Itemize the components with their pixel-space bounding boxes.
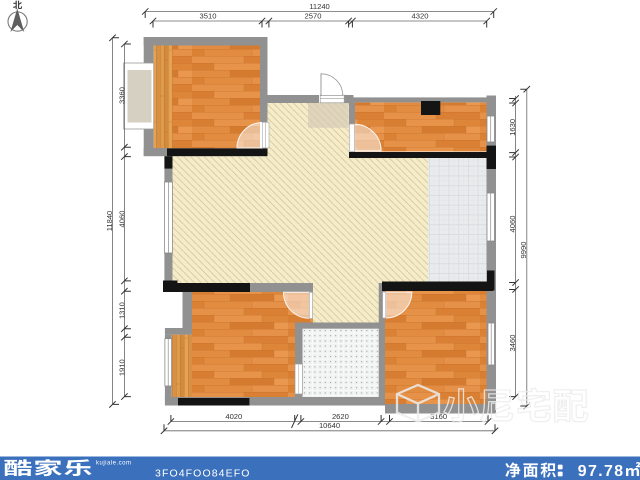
svg-text:4020: 4020 xyxy=(225,412,242,421)
svg-text:3460: 3460 xyxy=(508,335,517,352)
svg-text:11840: 11840 xyxy=(105,211,114,232)
svg-text:3FO4FOO84EFO: 3FO4FOO84EFO xyxy=(155,468,250,480)
svg-text:2620: 2620 xyxy=(332,412,349,421)
svg-text:2570: 2570 xyxy=(305,12,322,21)
svg-text:9990: 9990 xyxy=(519,242,528,259)
svg-text:10640: 10640 xyxy=(319,421,340,430)
svg-text:1910: 1910 xyxy=(118,359,127,376)
svg-text:1630: 1630 xyxy=(508,119,517,136)
svg-text:3510: 3510 xyxy=(200,12,217,21)
svg-text:11240: 11240 xyxy=(309,2,330,11)
svg-text:4320: 4320 xyxy=(412,12,429,21)
svg-text:4060: 4060 xyxy=(118,211,127,228)
svg-text:kujiale.com: kujiale.com xyxy=(96,461,132,467)
svg-text:3360: 3360 xyxy=(118,87,127,104)
svg-text:1310: 1310 xyxy=(118,302,127,319)
svg-text:4060: 4060 xyxy=(508,216,517,233)
